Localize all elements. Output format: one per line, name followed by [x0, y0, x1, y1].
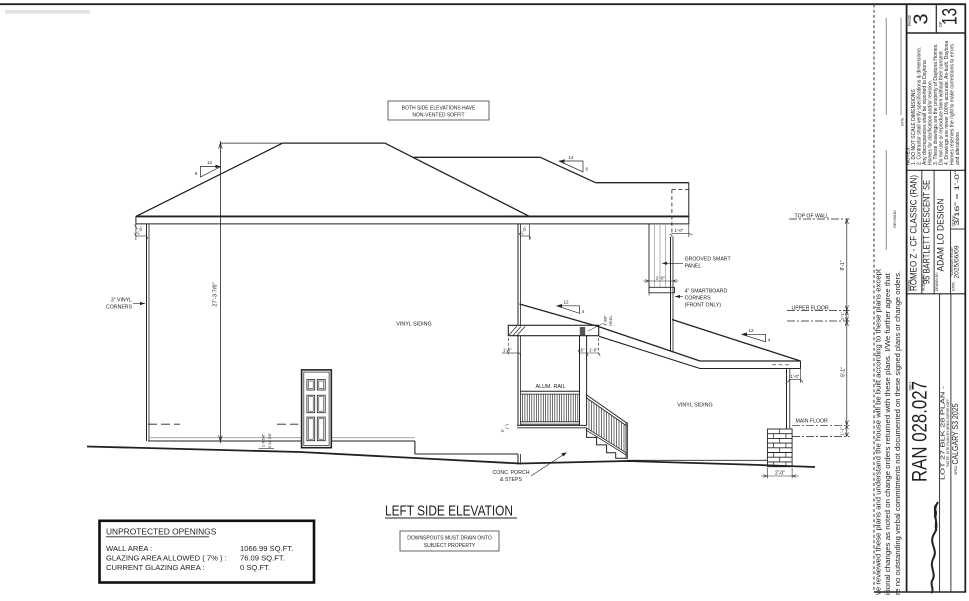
svg-text:SPEC:: SPEC: [954, 465, 958, 475]
svg-text:1'-0": 1'-0" [503, 348, 512, 353]
svg-text:6: 6 [195, 171, 198, 176]
svg-text:REVISION: REVISION [893, 210, 897, 228]
svg-text:3" VINYL: 3" VINYL [111, 298, 132, 304]
svg-text:13: 13 [939, 8, 962, 25]
svg-text:76.09 SQ.FT.: 76.09 SQ.FT. [240, 554, 285, 563]
svg-text:4" SMARTBOARD: 4" SMARTBOARD [685, 289, 728, 295]
svg-text:1'-6 5/8": 1'-6 5/8" [262, 433, 266, 447]
svg-text:VINYL SIDING: VINYL SIDING [677, 403, 712, 409]
svg-text:1'-0": 1'-0" [791, 374, 800, 379]
svg-text:"NOTE: SITE PLAN BY AREA SURVE: "NOTE: SITE PLAN BY AREA SURVEYOR" [946, 398, 950, 467]
svg-text:0'-10 5/8": 0'-10 5/8" [268, 432, 272, 448]
svg-text:and alterations.: and alterations. [955, 131, 961, 165]
svg-text:re no outstanding verbal commi: re no outstanding verbal commitments not… [894, 271, 902, 595]
svg-text:12: 12 [748, 328, 754, 333]
svg-text:WALL AREA :: WALL AREA : [106, 544, 152, 553]
svg-text:12: 12 [207, 160, 213, 165]
svg-text:& STEPS: & STEPS [500, 477, 522, 483]
svg-text:CONC. PORCH: CONC. PORCH [493, 470, 530, 476]
svg-text:9'-1": 9'-1" [841, 367, 847, 377]
svg-text:CORNERS: CORNERS [106, 305, 132, 311]
svg-text:GLAZING AREA ALLOWED ( 7% ) :: GLAZING AREA ALLOWED ( 7% ) : [106, 554, 227, 563]
svg-text:GROOVED SMART: GROOVED SMART [685, 257, 732, 263]
svg-text:ALUM. RAIL: ALUM. RAIL [536, 384, 566, 390]
svg-text:LEFT SIDE ELEVATION: LEFT SIDE ELEVATION [385, 504, 513, 520]
svg-text:4: 4 [582, 309, 585, 314]
svg-text:VINYL SIDING: VINYL SIDING [396, 322, 431, 328]
svg-text:1066.99 SQ.FT.: 1066.99 SQ.FT. [240, 544, 293, 553]
svg-text:2'-0": 2'-0" [775, 471, 785, 477]
svg-text:95 BARTLETT CRESCENT SE: 95 BARTLETT CRESCENT SE [922, 180, 932, 284]
svg-text:(FRONT ONLY): (FRONT ONLY) [685, 303, 722, 309]
svg-text:6": 6" [581, 348, 585, 353]
svg-text:CORNERS: CORNERS [685, 296, 711, 302]
svg-text:DATE:: DATE: [952, 281, 956, 291]
svg-text:PANEL: PANEL [685, 264, 702, 270]
svg-text:ADAM LO DESIGN: ADAM LO DESIGN [936, 199, 946, 272]
svg-text:8'-1": 8'-1" [840, 260, 846, 270]
svg-text:HEEL: HEEL [608, 315, 613, 326]
svg-text:6: 6 [586, 167, 589, 172]
svg-text:1'-1": 1'-1" [840, 311, 845, 320]
svg-text:ve reviewed these plans and un: ve reviewed these plans and understand t… [874, 269, 882, 595]
svg-text:SUBJECT PROPERTY: SUBJECT PROPERTY [424, 543, 476, 549]
svg-text:27'-3 7/8": 27'-3 7/8" [212, 282, 218, 306]
svg-text:3: 3 [911, 13, 933, 24]
svg-text:2025/06/09: 2025/06/09 [954, 245, 961, 278]
svg-text:DOWNSPOUTS MUST DRAIN ONTO: DOWNSPOUTS MUST DRAIN ONTO [407, 536, 492, 542]
svg-text:1'-0": 1'-0" [589, 348, 598, 353]
svg-text:TOP OF WALL: TOP OF WALL [795, 214, 830, 220]
svg-text:4: 4 [768, 337, 771, 342]
svg-text:1'-0": 1'-0" [675, 228, 684, 233]
svg-text:CURRENT GLAZING AREA :: CURRENT GLAZING AREA : [106, 563, 205, 572]
svg-text:MAIN FLOOR: MAIN FLOOR [796, 419, 829, 425]
svg-text:RAN 028.027: RAN 028.027 [909, 381, 932, 482]
svg-text:UNPROTECTED OPENINGS: UNPROTECTED OPENINGS [106, 527, 217, 537]
svg-text:DATE: DATE [901, 118, 905, 126]
svg-text:CALGARY S3 2025: CALGARY S3 2025 [951, 403, 960, 465]
svg-text:DRAWN BY:: DRAWN BY: [935, 272, 939, 291]
svg-text:12: 12 [563, 300, 569, 305]
svg-text:1'-1": 1'-1" [840, 427, 845, 436]
svg-text:3/16" = 1'-0": 3/16" = 1'-0" [954, 170, 961, 226]
svg-text:4-3/8": 4-3/8" [603, 315, 608, 326]
svg-text:NON-VENTED SOFFIT: NON-VENTED SOFFIT [412, 113, 464, 119]
svg-text:2'-0": 2'-0" [656, 275, 666, 280]
svg-text:BOTH SIDE ELEVATIONS HAVE: BOTH SIDE ELEVATIONS HAVE [402, 106, 476, 112]
svg-text:ROMEO Z - CF CLASSIC (RAN): ROMEO Z - CF CLASSIC (RAN) [909, 175, 919, 291]
svg-text:12: 12 [568, 155, 574, 160]
svg-text:0 SQ.FT.: 0 SQ.FT. [240, 563, 270, 572]
svg-text:itional changes as noted on ch: itional changes as noted on change order… [884, 273, 892, 595]
